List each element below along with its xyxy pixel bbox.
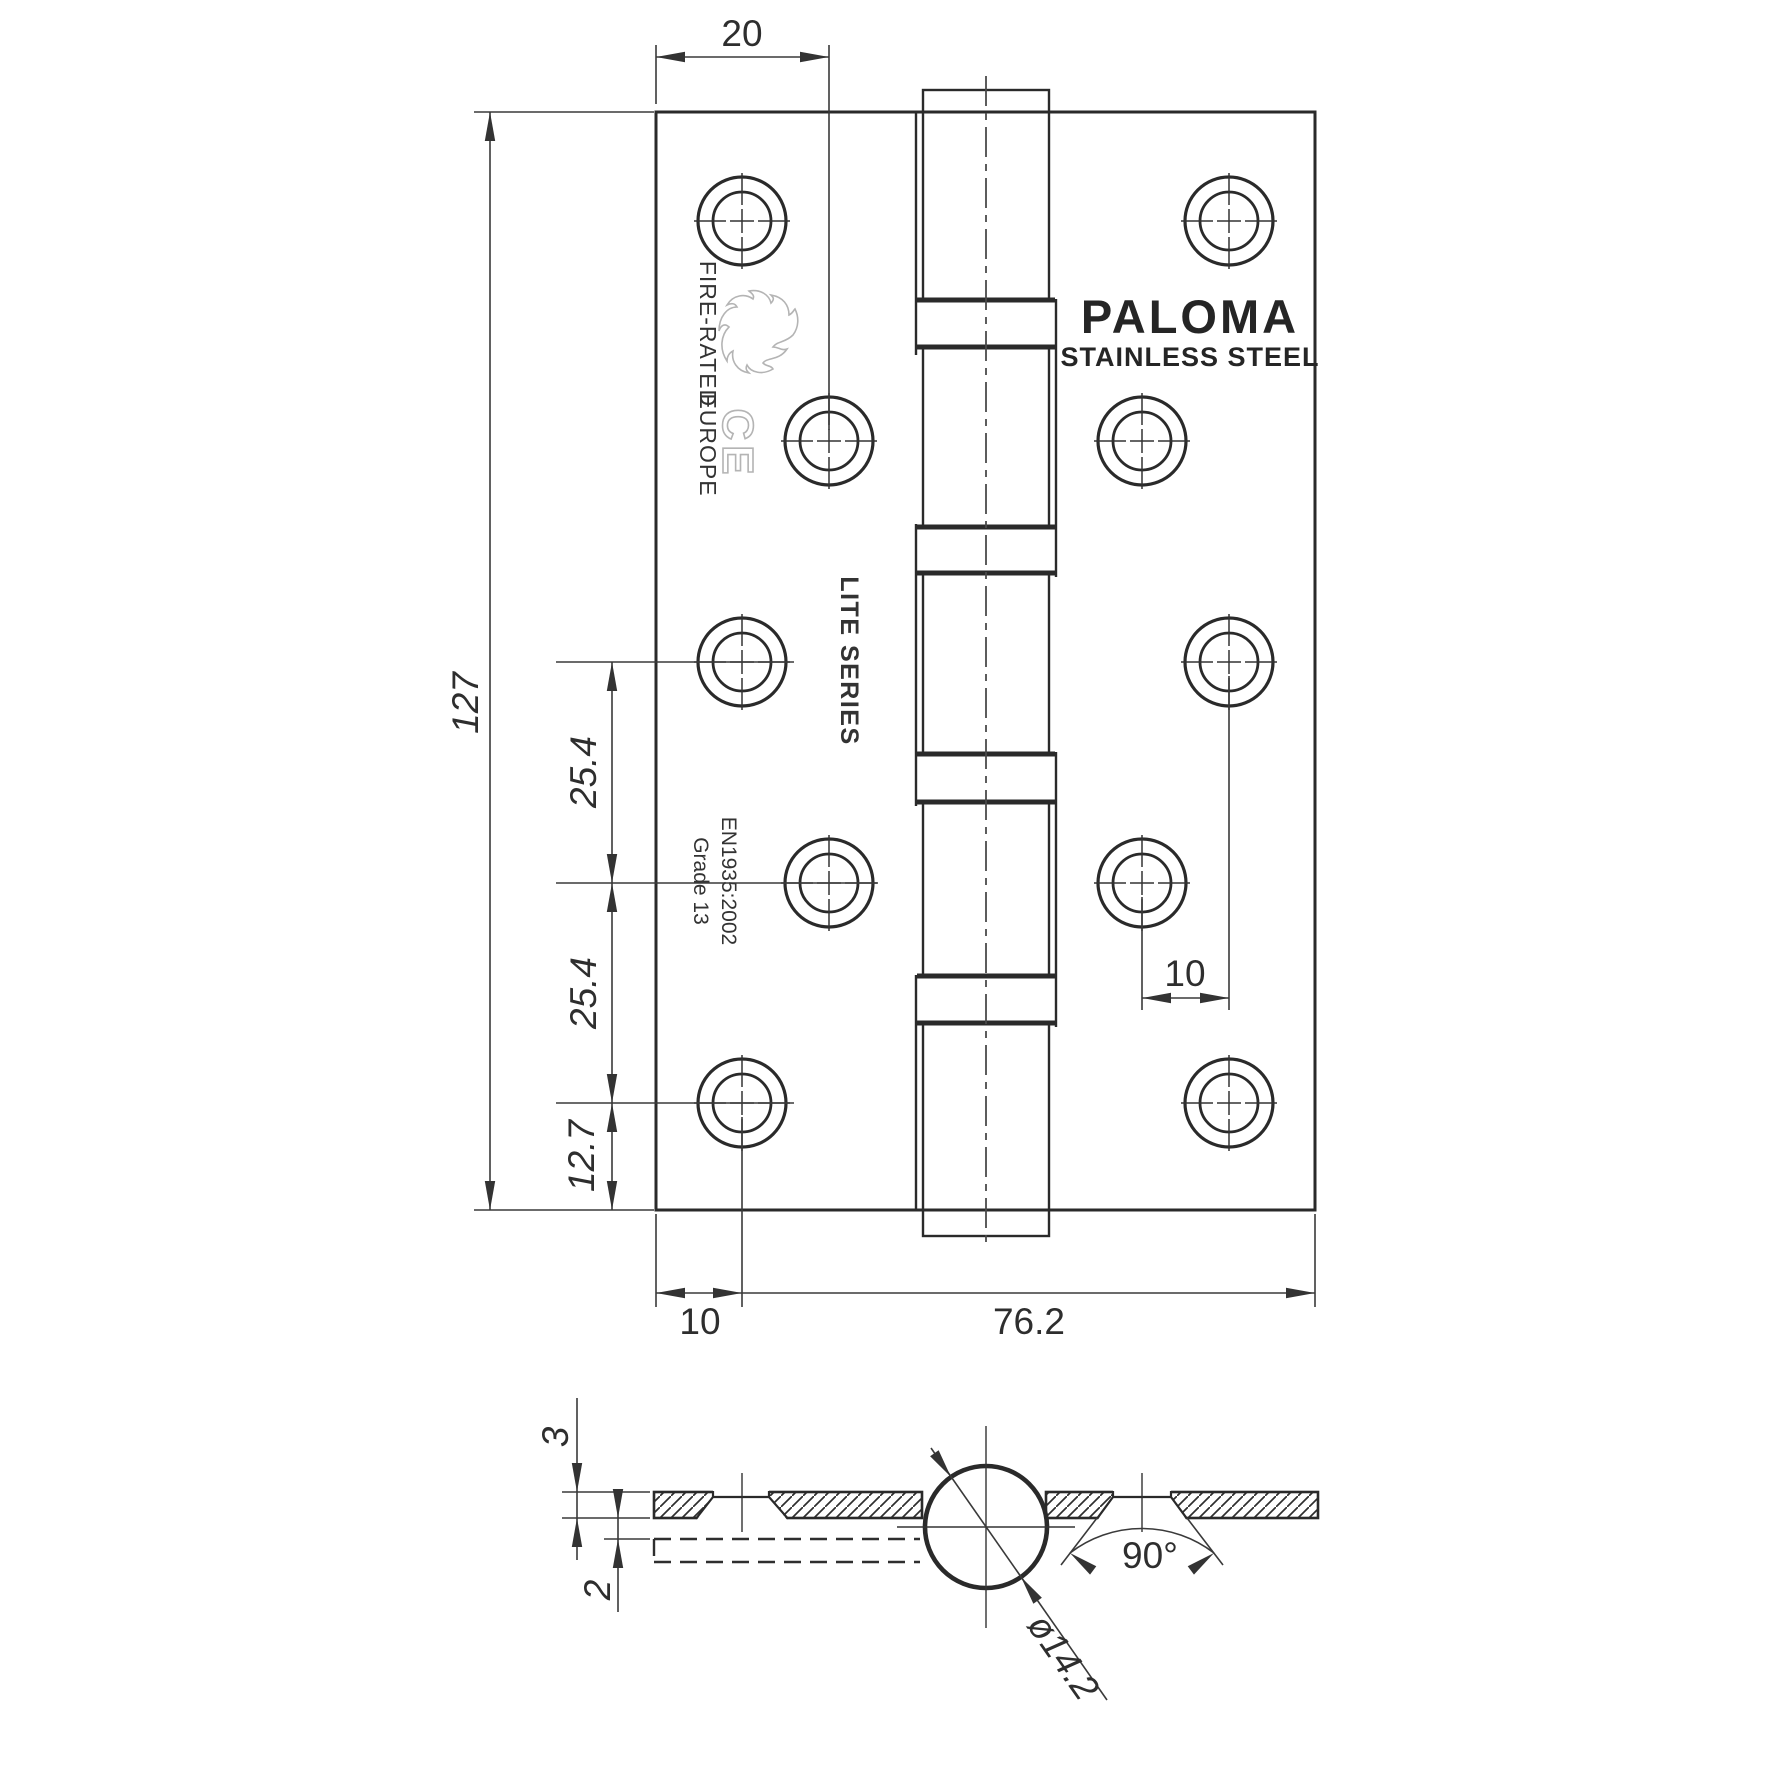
dim-countersink-angle: 90° [1122, 1535, 1178, 1576]
screw-hole [694, 173, 790, 269]
brand-subtitle: STAINLESS STEEL [1060, 342, 1319, 372]
dim-open-width: 76.2 [993, 1301, 1065, 1342]
section-left-leaf [654, 1492, 922, 1518]
dim-leaf-height: 127 [445, 671, 486, 734]
standard-label: EN1935:2002 [717, 817, 740, 945]
dim-hole-stagger: 10 [1164, 953, 1205, 994]
dim-knuckle-diameter: ø14.2 [1019, 1606, 1107, 1707]
section-view: ø14.2 90° 3 2 [535, 1398, 1318, 1708]
flame-icon [719, 291, 798, 373]
section-countersink-right [1097, 1473, 1187, 1532]
dim-top-hole-offset: 20 [721, 13, 762, 54]
series-label: LITE SERIES [835, 576, 863, 745]
screw-hole [1094, 393, 1190, 489]
plan-view: PALOMA STAINLESS STEEL FIRE-RATED EUROPE… [445, 13, 1320, 1342]
section-countersink-left [696, 1473, 788, 1532]
section-hidden-leaf [654, 1539, 920, 1562]
dim-pitch-b: 25.4 [563, 957, 604, 1030]
paloma-logo: PALOMA [1081, 290, 1299, 343]
svg-text:CE: CE [713, 408, 762, 479]
hinge-technical-drawing: PALOMA STAINLESS STEEL FIRE-RATED EUROPE… [0, 0, 1771, 1771]
dim-bottom-hole-offset: 12.7 [561, 1119, 602, 1192]
dim-leaf-thickness: 3 [535, 1426, 576, 1447]
screw-hole [1181, 1055, 1277, 1151]
grade-label: Grade 13 [689, 837, 712, 925]
dim-leaf-gap: 2 [577, 1579, 618, 1601]
standard-block: EN1935:2002 Grade 13 [689, 817, 740, 945]
fire-rated-label: FIRE-RATED [695, 261, 721, 407]
ce-icon: CE [713, 408, 762, 479]
dim-pitch-a: 25.4 [563, 736, 604, 809]
dim-edge-hole-offset: 10 [679, 1301, 720, 1342]
screw-hole [1181, 173, 1277, 269]
